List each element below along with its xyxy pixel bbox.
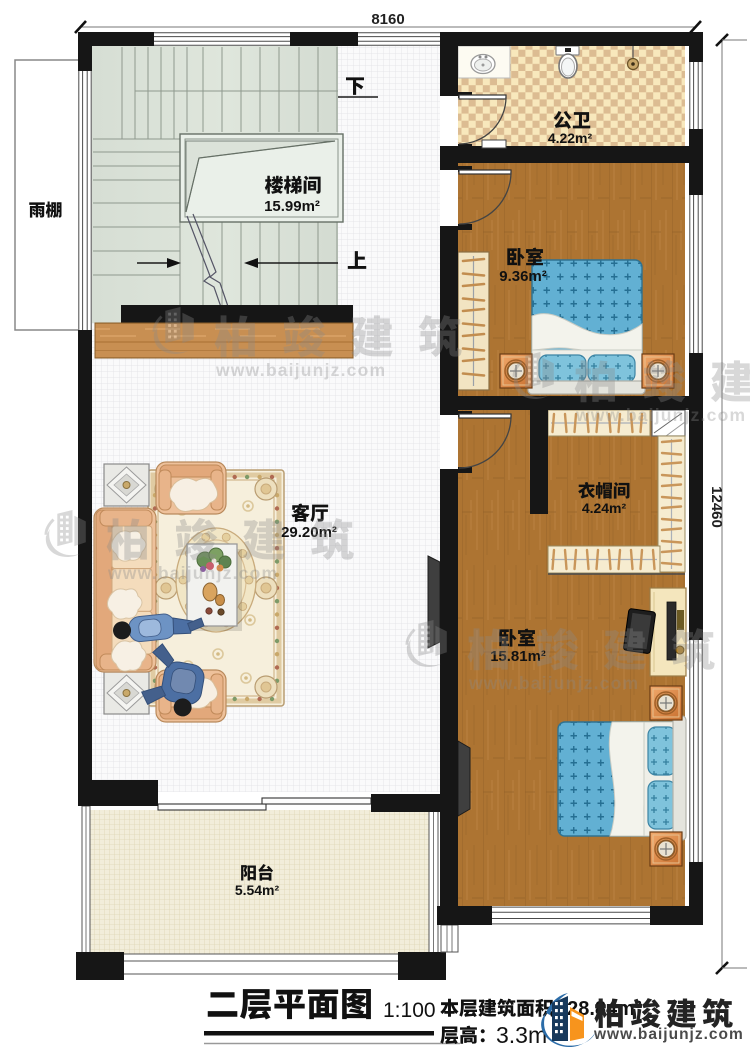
svg-text:5.54m²: 5.54m² <box>235 882 280 898</box>
svg-text:www.baijunjz.com: www.baijunjz.com <box>593 1026 744 1043</box>
svg-text:www.baijunjz.com: www.baijunjz.com <box>575 405 746 425</box>
svg-text:www.baijunjz.com: www.baijunjz.com <box>215 360 386 380</box>
svg-text:www.baijunjz.com: www.baijunjz.com <box>107 563 278 583</box>
svg-text:12460: 12460 <box>708 486 725 528</box>
svg-text:3.3m: 3.3m <box>496 1022 547 1048</box>
svg-text:4.22m²: 4.22m² <box>548 130 593 146</box>
svg-text:15.99m²: 15.99m² <box>264 198 320 215</box>
svg-text:4.24m²: 4.24m² <box>582 500 627 516</box>
svg-text:www.baijunjz.com: www.baijunjz.com <box>468 673 639 693</box>
svg-text:1:100: 1:100 <box>383 999 436 1022</box>
svg-text:8160: 8160 <box>371 11 404 28</box>
svg-text:9.36m²: 9.36m² <box>499 268 547 285</box>
